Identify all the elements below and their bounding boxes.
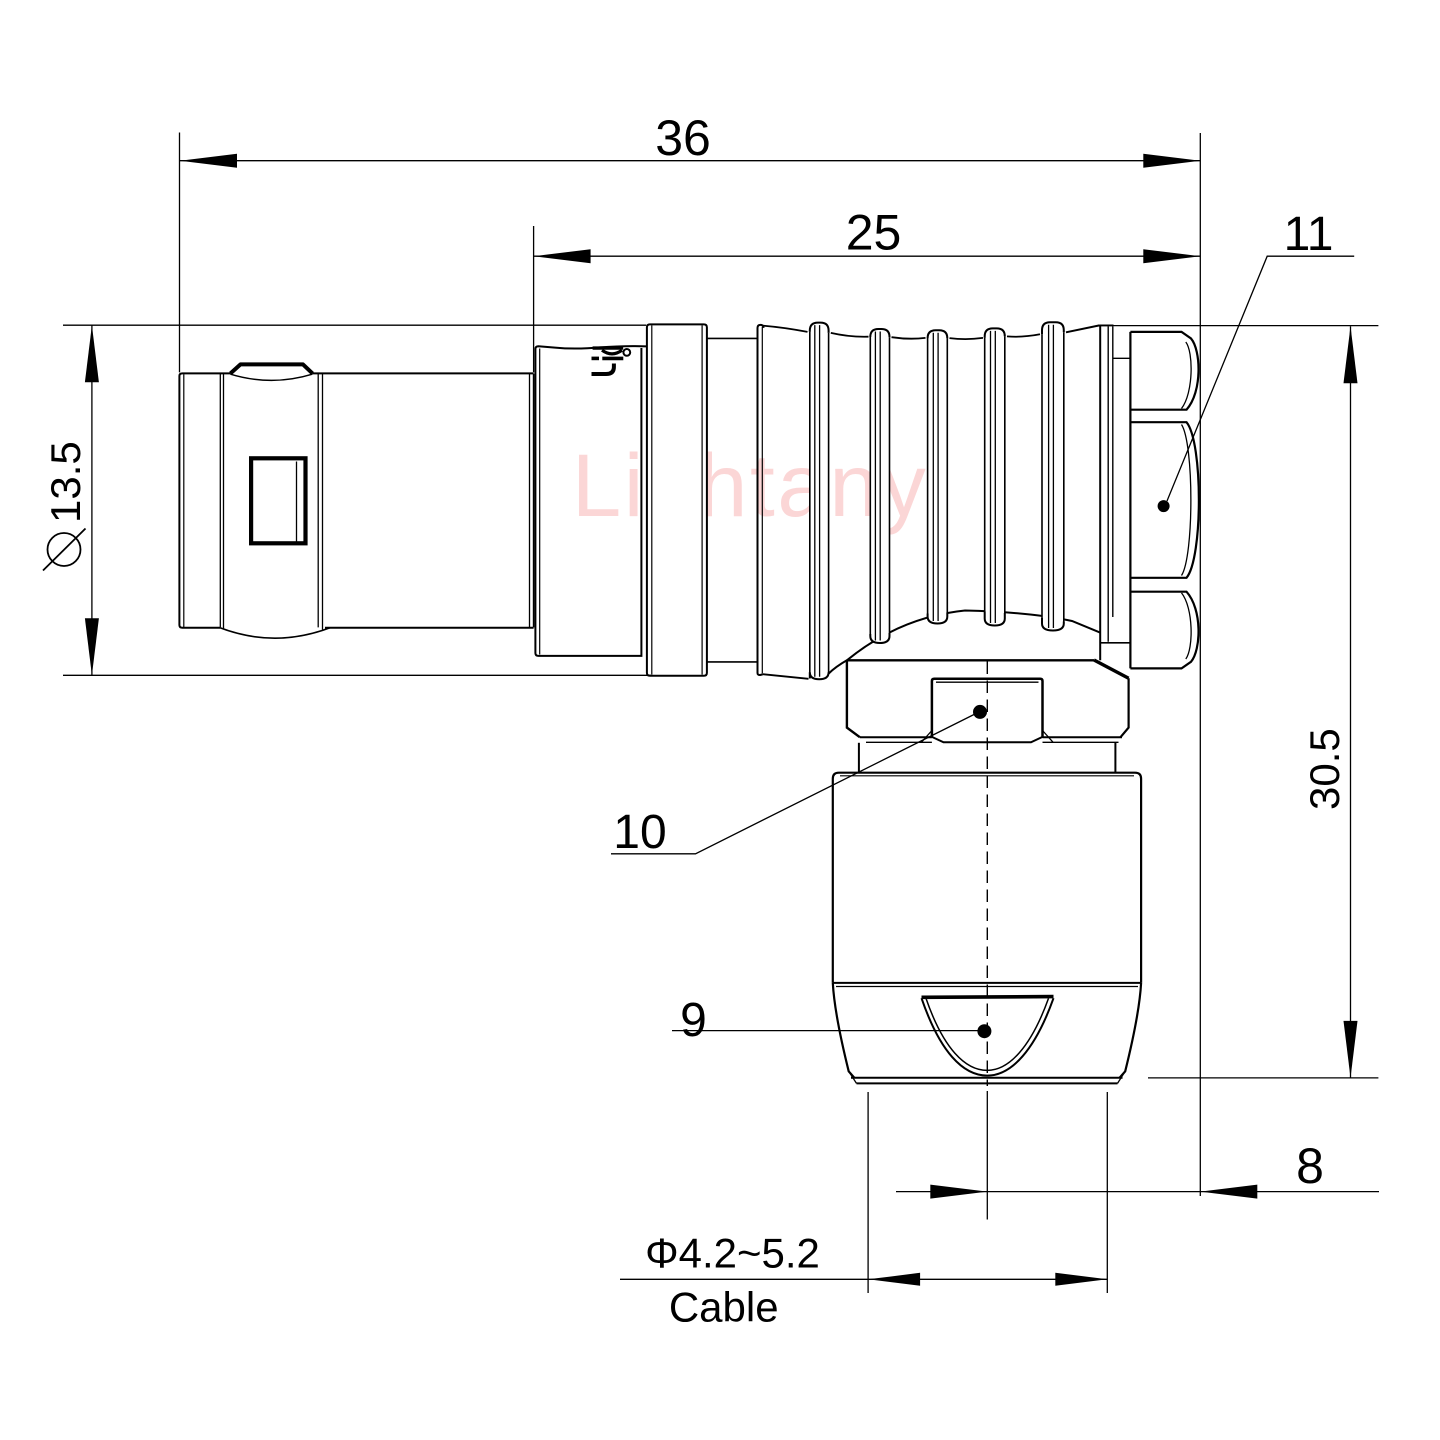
svg-text:36: 36 xyxy=(655,110,711,166)
svg-text:11: 11 xyxy=(1284,208,1334,261)
svg-text:Φ4.2~5.2: Φ4.2~5.2 xyxy=(645,1230,820,1277)
svg-text:8: 8 xyxy=(1296,1138,1324,1194)
svg-text:13.5: 13.5 xyxy=(42,441,89,523)
svg-text:25: 25 xyxy=(846,205,902,261)
svg-text:10: 10 xyxy=(613,806,666,859)
svg-text:Cable: Cable xyxy=(669,1283,779,1330)
svg-text:30.5: 30.5 xyxy=(1301,728,1348,810)
svg-text:9: 9 xyxy=(680,994,707,1047)
